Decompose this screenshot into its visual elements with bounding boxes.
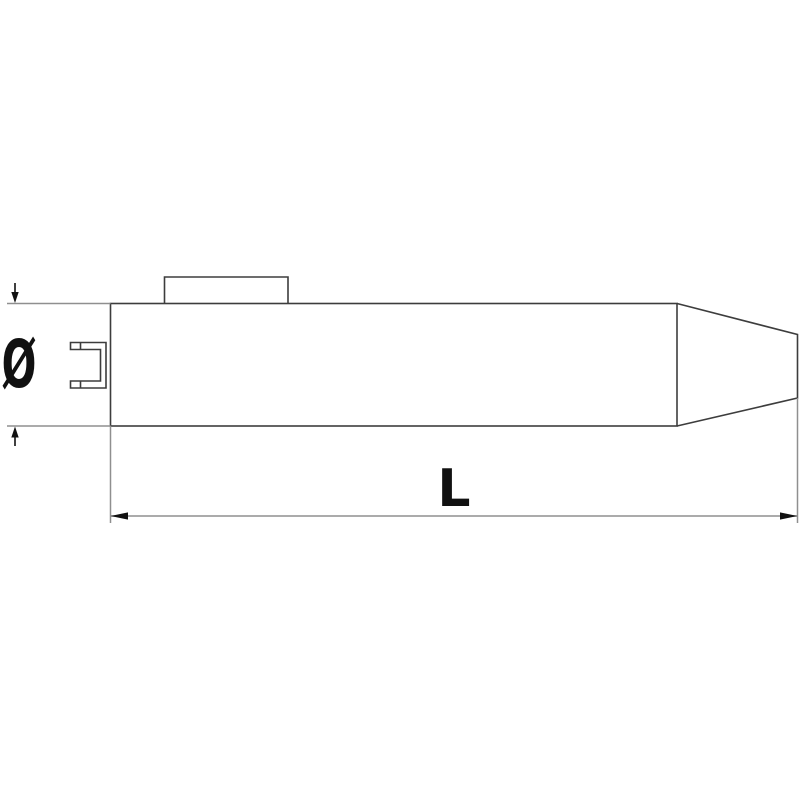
top-boss [165, 277, 289, 304]
diameter-arrowhead-top [11, 292, 18, 303]
length-arrowhead-right [780, 512, 798, 519]
length-arrowhead-left [111, 512, 129, 519]
label-group: Ø L [2, 326, 471, 519]
arrow-group [11, 283, 797, 520]
tool-body [111, 304, 678, 427]
dimension-line-group [7, 304, 798, 524]
part-outline-group [71, 277, 798, 426]
technical-drawing-canvas: Ø L [0, 0, 800, 800]
length-label: L [437, 459, 470, 519]
left-clip [71, 343, 107, 389]
tapered-nose [677, 304, 798, 427]
diameter-label: Ø [2, 326, 37, 403]
tool-dimension-diagram: Ø L [0, 0, 800, 800]
diameter-arrowhead-bottom [11, 427, 18, 438]
